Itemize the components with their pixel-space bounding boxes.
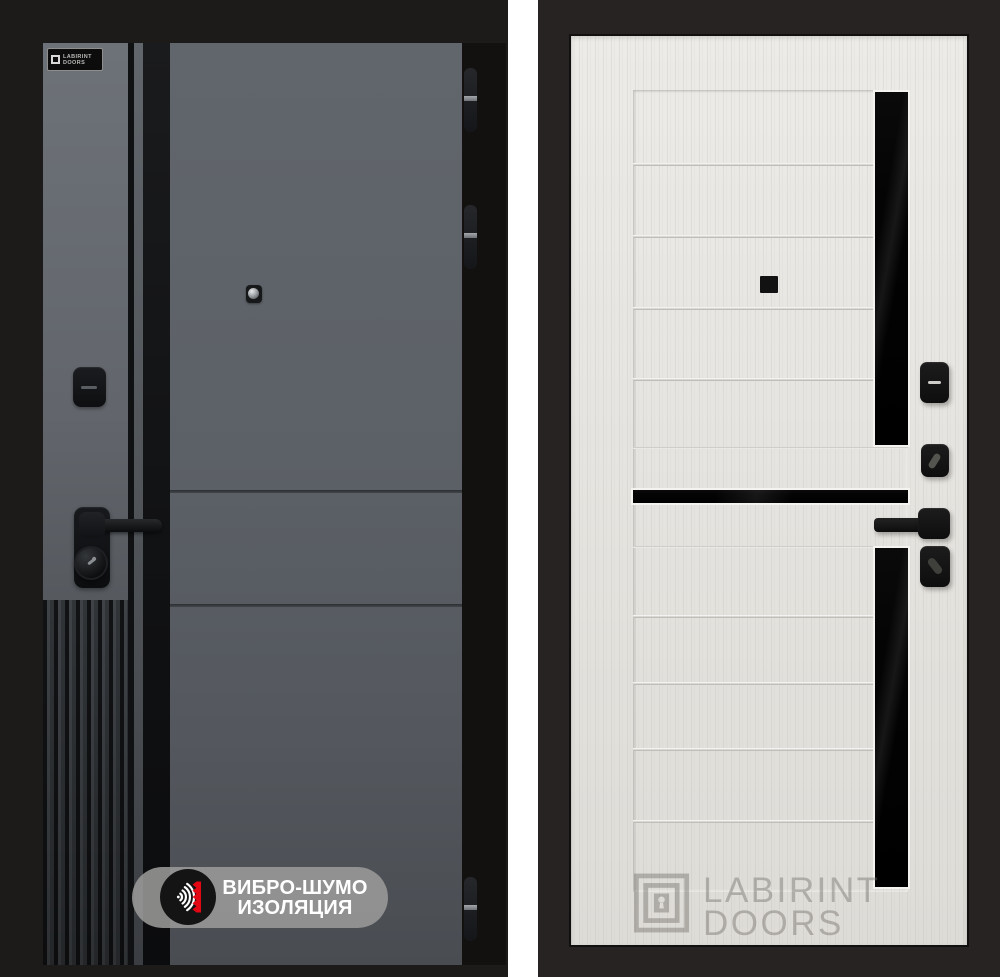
horizontal-groove: [633, 307, 875, 310]
left-door-leaf: LABIRINT DOORS: [43, 43, 462, 965]
keyhole-slot: [928, 381, 941, 384]
glass-insert-vertical-upper: [875, 92, 908, 445]
left-door-photo: LABIRINT DOORS: [0, 0, 508, 977]
escutcheon-top: [920, 362, 949, 403]
horizontal-groove: [170, 490, 462, 493]
horizontal-groove: [633, 820, 875, 823]
left-door-main-panel: [170, 43, 462, 965]
hinge-bottom: [464, 877, 477, 941]
keyhole-icon: [927, 452, 941, 469]
thumbturn-cover: [920, 546, 950, 587]
handle-rose: [918, 508, 950, 539]
brand-watermark-text: LABIRINT DOORS: [703, 874, 881, 940]
door-product-image: LABIRINT DOORS: [0, 0, 1000, 977]
brand-watermark: LABIRINT DOORS: [633, 872, 881, 940]
badge-line1: ВИБРО-ШУМО: [216, 878, 374, 898]
right-door-leaf: LABIRINT DOORS: [571, 36, 967, 945]
hinge-pin: [464, 905, 477, 910]
glass-insert-horizontal: [633, 490, 908, 503]
horizontal-groove: [633, 748, 875, 751]
lock-cylinder-cover: [921, 444, 949, 477]
hinge-middle: [464, 205, 477, 269]
horizontal-groove: [633, 378, 875, 381]
sound-insulation-label: ВИБРО-ШУМО ИЗОЛЯЦИЯ: [216, 878, 374, 918]
hinge-pin: [464, 233, 477, 238]
watermark-line2: DOORS: [703, 907, 881, 940]
sound-waves-vibration-glyph: [168, 877, 208, 917]
horizontal-groove: [633, 682, 875, 685]
left-door-edge: [462, 43, 506, 965]
peephole-lens-icon: [248, 288, 259, 299]
panel-edge-line: [633, 546, 908, 548]
brand-plate: LABIRINT DOORS: [47, 48, 103, 71]
peephole: [760, 276, 778, 293]
brand-plate-line2: DOORS: [63, 60, 92, 66]
handle-pivot: [79, 512, 105, 538]
hinge-top: [464, 68, 477, 132]
sound-waves-vibration-icon: [160, 869, 216, 925]
sound-insulation-badge: ВИБРО-ШУМО ИЗОЛЯЦИЯ: [132, 867, 388, 928]
keyhole-slot: [81, 386, 97, 389]
badge-line2: ИЗОЛЯЦИЯ: [216, 898, 374, 918]
horizontal-groove: [633, 163, 875, 166]
horizontal-groove: [633, 235, 875, 238]
lock-cylinder: [74, 546, 108, 580]
peephole: [246, 285, 262, 303]
thumbturn-knob: [926, 556, 943, 575]
panel-edge-line: [633, 447, 908, 449]
vertical-trim-strip: [134, 43, 143, 965]
right-door-photo: LABIRINT DOORS: [538, 0, 1000, 977]
labirint-logo-icon: [51, 55, 60, 64]
glass-insert-vertical-lower: [875, 548, 908, 887]
keyhole-icon: [87, 557, 96, 565]
black-vertical-stripe: [143, 43, 170, 965]
left-door-side-column: [43, 43, 128, 965]
horizontal-groove: [633, 615, 875, 618]
brand-plate-text: LABIRINT DOORS: [63, 54, 92, 66]
photo-divider: [508, 0, 538, 977]
fluted-ribs-panel: [43, 600, 128, 965]
keyhole-cover: [73, 367, 106, 407]
watermark-line1: LABIRINT: [703, 874, 881, 907]
horizontal-groove: [170, 604, 462, 607]
labyrinth-keyhole-icon: [633, 872, 690, 934]
hinge-pin: [464, 96, 477, 101]
